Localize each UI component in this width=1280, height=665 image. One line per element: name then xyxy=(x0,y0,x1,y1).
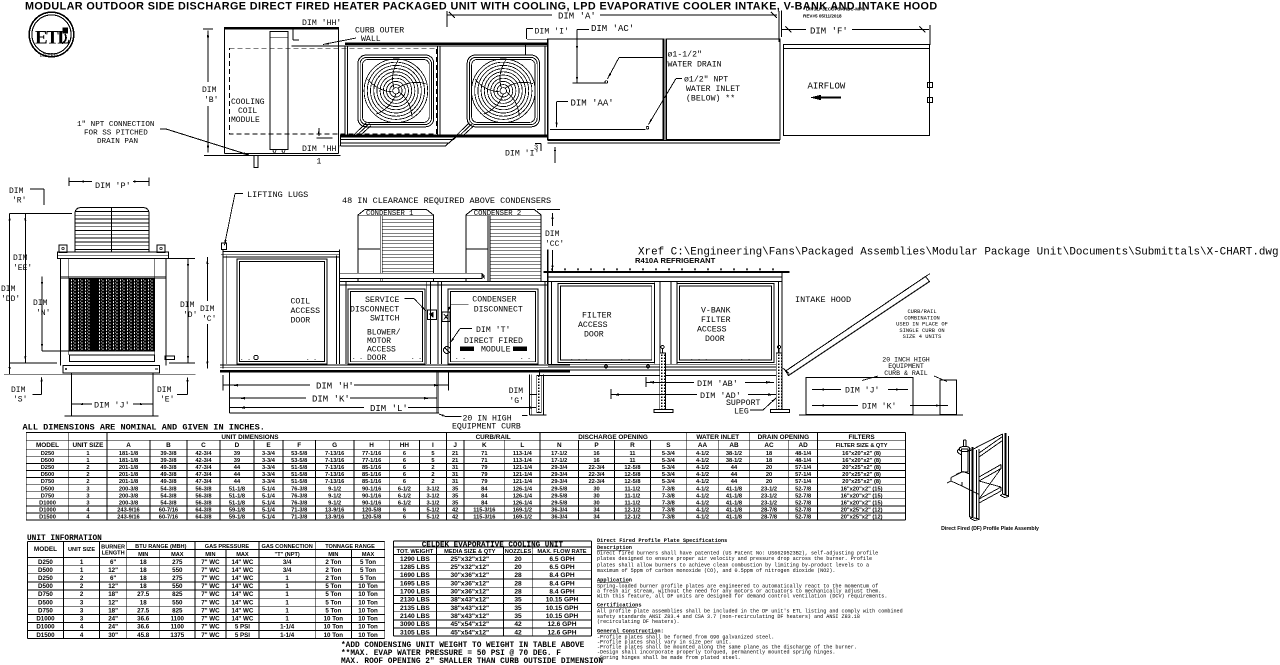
svg-text:1: 1 xyxy=(285,575,289,582)
svg-text:28: 28 xyxy=(514,588,522,595)
svg-text:SIZE 4 UNITS: SIZE 4 UNITS xyxy=(903,334,942,340)
svg-text:77-1/16: 77-1/16 xyxy=(362,458,381,464)
svg-text:2: 2 xyxy=(80,591,84,598)
svg-text:A: A xyxy=(126,442,131,449)
svg-text:243-9/16: 243-9/16 xyxy=(117,515,139,521)
svg-text:6": 6" xyxy=(110,575,116,582)
svg-text:8.4 GPH: 8.4 GPH xyxy=(549,588,575,595)
svg-text:14" WC: 14" WC xyxy=(232,599,254,606)
svg-text:2: 2 xyxy=(86,465,89,471)
svg-text:4-1/2: 4-1/2 xyxy=(696,486,709,492)
svg-text:G: G xyxy=(332,442,337,449)
svg-text:550: 550 xyxy=(172,599,183,606)
svg-text:D750: D750 xyxy=(38,591,53,598)
svg-text:WALL: WALL xyxy=(361,35,381,44)
svg-text:47-3/4: 47-3/4 xyxy=(195,465,212,471)
svg-text:23-1/2: 23-1/2 xyxy=(761,486,777,492)
svg-text:44: 44 xyxy=(731,465,738,471)
svg-text:D750: D750 xyxy=(38,607,53,614)
svg-text:24": 24" xyxy=(108,616,118,623)
svg-text:DIM 'A': DIM 'A' xyxy=(558,12,596,22)
svg-text:(BELOW) **: (BELOW) ** xyxy=(686,94,735,104)
svg-text:34: 34 xyxy=(593,515,600,521)
svg-text:MODEL: MODEL xyxy=(34,546,57,553)
svg-text:1: 1 xyxy=(80,559,84,566)
svg-text:20"x25"x2" (12): 20"x25"x2" (12) xyxy=(841,508,883,514)
svg-text:(recirculating DF heaters).: (recirculating DF heaters). xyxy=(597,619,680,625)
svg-text:COMBINATION: COMBINATION xyxy=(904,315,940,321)
svg-text:D250: D250 xyxy=(38,559,53,566)
svg-text:DIM: DIM xyxy=(509,387,524,396)
svg-text:49-3/8: 49-3/8 xyxy=(160,465,176,471)
svg-text:79: 79 xyxy=(481,465,487,471)
svg-text:7-13/16: 7-13/16 xyxy=(325,465,344,471)
svg-text:ACCESS: ACCESS xyxy=(578,321,608,330)
svg-text:E: E xyxy=(266,442,271,449)
svg-text:13-9/16: 13-9/16 xyxy=(325,508,344,514)
svg-text:550: 550 xyxy=(172,567,183,574)
svg-text:28-7/8: 28-7/8 xyxy=(761,515,777,521)
svg-text:. .: . . xyxy=(740,355,751,362)
svg-text:'E': 'E' xyxy=(160,396,174,405)
svg-text:121-1/4: 121-1/4 xyxy=(513,472,533,478)
svg-text:825: 825 xyxy=(172,607,183,614)
svg-text:3: 3 xyxy=(86,500,89,506)
svg-text:DIM 'HH': DIM 'HH' xyxy=(302,144,341,154)
svg-text:1: 1 xyxy=(285,607,289,614)
svg-text:20: 20 xyxy=(766,465,772,471)
svg-text:12.6 GPH: 12.6 GPH xyxy=(548,629,577,636)
svg-text:53-5/8: 53-5/8 xyxy=(291,458,307,464)
svg-text:DIM 'AB': DIM 'AB' xyxy=(697,379,738,389)
svg-text:5-1/4: 5-1/4 xyxy=(262,515,276,521)
svg-text:12-5/8: 12-5/8 xyxy=(624,472,640,478)
svg-text:5 PSI: 5 PSI xyxy=(235,624,250,631)
svg-text:LENGTH: LENGTH xyxy=(102,551,125,557)
svg-text:29-5/8: 29-5/8 xyxy=(551,500,567,506)
svg-text:D500: D500 xyxy=(38,583,53,590)
svg-text:GAS PRESSURE: GAS PRESSURE xyxy=(205,544,250,550)
svg-text:3-3/4: 3-3/4 xyxy=(262,451,276,457)
svg-text:59-1/8: 59-1/8 xyxy=(229,508,245,514)
svg-text:DIM 'K': DIM 'K' xyxy=(862,402,896,412)
svg-text:DIM 'AD': DIM 'AD' xyxy=(700,391,741,401)
svg-text:J: J xyxy=(453,442,457,449)
svg-text:3-3/4: 3-3/4 xyxy=(262,465,276,471)
svg-text:85-1/16: 85-1/16 xyxy=(362,472,381,478)
svg-text:DIM 'T': DIM 'T' xyxy=(476,325,510,335)
svg-text:28: 28 xyxy=(514,580,522,587)
svg-text:30: 30 xyxy=(593,486,599,492)
svg-text:121-1/4: 121-1/4 xyxy=(513,479,533,485)
svg-text:17-1/2: 17-1/2 xyxy=(551,458,567,464)
svg-text:35: 35 xyxy=(452,493,458,499)
svg-text:10 Ton: 10 Ton xyxy=(358,616,378,623)
svg-text:MODULE: MODULE xyxy=(231,116,260,125)
svg-text:29-3/4: 29-3/4 xyxy=(551,479,568,485)
svg-text:LEG: LEG xyxy=(734,408,749,417)
svg-text:DIM: DIM xyxy=(11,386,26,395)
svg-text:7" WC: 7" WC xyxy=(201,599,220,606)
svg-text:12": 12" xyxy=(108,583,118,590)
svg-text:825: 825 xyxy=(172,591,183,598)
svg-text:MEDIA SIZE & QTY: MEDIA SIZE & QTY xyxy=(444,549,496,555)
svg-text:'S': 'S' xyxy=(13,396,27,405)
svg-text:57-1/4: 57-1/4 xyxy=(795,479,812,485)
svg-text:18": 18" xyxy=(108,591,118,598)
svg-text:29-5/8: 29-5/8 xyxy=(551,493,567,499)
svg-text:52-7/8: 52-7/8 xyxy=(795,500,811,506)
svg-text:MAX: MAX xyxy=(171,552,184,558)
svg-text:DIM: DIM xyxy=(200,305,215,314)
svg-text:AD: AD xyxy=(799,442,809,449)
svg-text:9-1/2: 9-1/2 xyxy=(328,500,341,506)
svg-text:10.15 GPH: 10.15 GPH xyxy=(546,597,579,604)
svg-text:85-1/16: 85-1/16 xyxy=(362,479,381,485)
svg-text:5 Ton: 5 Ton xyxy=(325,583,341,590)
svg-text:126-1/4: 126-1/4 xyxy=(513,500,533,506)
svg-text:51-5/8: 51-5/8 xyxy=(291,472,307,478)
svg-text:200-3/8: 200-3/8 xyxy=(119,486,138,492)
svg-text:10.15 GPH: 10.15 GPH xyxy=(546,613,579,620)
svg-text:ALL DIMENSIONS ARE NOMINAL AND: ALL DIMENSIONS ARE NOMINAL AND GIVEN IN … xyxy=(23,422,265,432)
svg-text:4-1/2: 4-1/2 xyxy=(696,479,709,485)
svg-text:2: 2 xyxy=(80,583,84,590)
svg-text:42-3/4: 42-3/4 xyxy=(195,458,212,464)
svg-text:DIM: DIM xyxy=(9,187,24,196)
svg-text:18: 18 xyxy=(140,599,147,606)
svg-text:DISCONNECT: DISCONNECT xyxy=(350,305,399,314)
svg-text:MODEL: MODEL xyxy=(36,442,59,449)
svg-text:52-7/8: 52-7/8 xyxy=(795,486,811,492)
svg-text:5-1/2: 5-1/2 xyxy=(426,508,439,514)
svg-text:DIM 'J': DIM 'J' xyxy=(94,401,130,411)
svg-text:DIM 'HH': DIM 'HH' xyxy=(302,18,341,28)
svg-text:8.4 GPH: 8.4 GPH xyxy=(549,572,575,579)
svg-text:7-3/8: 7-3/8 xyxy=(662,515,675,521)
svg-text:14" WC: 14" WC xyxy=(232,567,254,574)
svg-text:FILTERS: FILTERS xyxy=(848,434,875,441)
svg-text:'D': 'D' xyxy=(183,311,197,320)
svg-text:57-1/4: 57-1/4 xyxy=(795,472,812,478)
svg-text:DIM 'I': DIM 'I' xyxy=(535,27,569,37)
svg-text:1700 LBS: 1700 LBS xyxy=(400,588,430,595)
svg-text:DIV3LP3ECOFSAHDC-MPU: DIV3LP3ECOFSAHDC-MPU xyxy=(806,7,866,12)
svg-text:31: 31 xyxy=(452,472,458,478)
svg-text:22-3/4: 22-3/4 xyxy=(588,472,605,478)
svg-text:42: 42 xyxy=(452,515,458,521)
svg-text:12-1/2: 12-1/2 xyxy=(624,508,640,514)
svg-text:maximum of 5ppm of carbon mono: maximum of 5ppm of carbon monoxide (CO),… xyxy=(597,568,835,574)
svg-text:plates designed to ensure prop: plates designed to ensure proper air vel… xyxy=(597,556,872,562)
svg-text:DIM: DIM xyxy=(180,301,195,310)
svg-text:10 Ton: 10 Ton xyxy=(358,632,378,639)
svg-text:16: 16 xyxy=(593,458,599,464)
svg-text:**MAX. EVAP WATER PRESSURE = 5: **MAX. EVAP WATER PRESSURE = 50 PSI @ 70… xyxy=(341,650,561,658)
svg-text:'R': 'R' xyxy=(12,197,26,206)
svg-text:30"x36"x12": 30"x36"x12" xyxy=(450,588,489,595)
svg-text:90-1/16: 90-1/16 xyxy=(362,500,381,506)
svg-text:1: 1 xyxy=(285,583,289,590)
svg-text:18: 18 xyxy=(140,583,147,590)
svg-text:DIM: DIM xyxy=(33,299,48,308)
svg-text:DRAIN PAN: DRAIN PAN xyxy=(97,138,138,146)
svg-text:*ADD CONDENSING UNIT WEIGHT TO: *ADD CONDENSING UNIT WEIGHT TO WEIGHT IN… xyxy=(341,642,585,650)
svg-text:L: L xyxy=(520,442,524,449)
svg-text:CURB & RAIL: CURB & RAIL xyxy=(884,370,928,377)
svg-text:7-13/16: 7-13/16 xyxy=(325,451,344,457)
svg-text:25"x32"x12": 25"x32"x12" xyxy=(450,564,489,571)
svg-text:1285 LBS: 1285 LBS xyxy=(400,564,430,571)
svg-text:6.5 GPH: 6.5 GPH xyxy=(549,564,575,571)
svg-text:41-1/8: 41-1/8 xyxy=(726,493,742,499)
svg-text:16"x20"x2" (15): 16"x20"x2" (15) xyxy=(841,500,883,506)
svg-text:7" WC: 7" WC xyxy=(201,632,220,639)
svg-text:2135 LBS: 2135 LBS xyxy=(400,605,430,612)
svg-text:47-3/4: 47-3/4 xyxy=(195,479,212,485)
svg-text:10 Ton: 10 Ton xyxy=(358,607,378,614)
svg-text:52-7/8: 52-7/8 xyxy=(795,515,811,521)
svg-text:TOT. WEIGHT: TOT. WEIGHT xyxy=(397,549,434,555)
svg-text:14" WC: 14" WC xyxy=(232,559,254,566)
svg-text:D500: D500 xyxy=(41,472,55,478)
svg-text:I: I xyxy=(432,442,434,449)
svg-text:AC: AC xyxy=(764,442,774,449)
svg-text:54-3/8: 54-3/8 xyxy=(160,493,176,499)
svg-text:51-1/8: 51-1/8 xyxy=(229,493,245,499)
svg-text:5 Ton: 5 Ton xyxy=(360,559,376,566)
svg-text:51-5/8: 51-5/8 xyxy=(291,465,307,471)
svg-text:200-3/8: 200-3/8 xyxy=(119,493,138,499)
svg-text:1: 1 xyxy=(285,616,289,623)
svg-text:115-3/16: 115-3/16 xyxy=(473,508,495,514)
svg-text:200-3/8: 200-3/8 xyxy=(119,500,138,506)
svg-text:76-3/8: 76-3/8 xyxy=(291,493,307,499)
svg-text:. .: . . xyxy=(520,354,531,361)
svg-text:169-1/2: 169-1/2 xyxy=(513,515,532,521)
svg-text:243-9/16: 243-9/16 xyxy=(117,508,139,514)
svg-text:DOOR: DOOR xyxy=(367,354,386,363)
svg-text:10 Ton: 10 Ton xyxy=(324,616,344,623)
svg-text:5-3/4: 5-3/4 xyxy=(662,472,676,478)
svg-text:DIM 'H': DIM 'H' xyxy=(316,382,354,392)
svg-text:120-5/8: 120-5/8 xyxy=(362,508,381,514)
svg-text:CURB/RAIL: CURB/RAIL xyxy=(476,434,511,441)
svg-text:F: F xyxy=(297,442,301,449)
svg-text:5 Ton: 5 Ton xyxy=(325,599,341,606)
svg-text:MODULAR OUTDOOR SIDE DISCHARGE: MODULAR OUTDOOR SIDE DISCHARGE DIRECT FI… xyxy=(25,1,938,13)
svg-text:. .: . . xyxy=(411,354,422,361)
svg-text:2 Ton: 2 Ton xyxy=(325,575,341,582)
svg-text:6: 6 xyxy=(403,458,406,464)
svg-text:1690 LBS: 1690 LBS xyxy=(400,572,430,579)
svg-text:ø1/2" NPT: ø1/2" NPT xyxy=(684,75,728,85)
svg-text:71: 71 xyxy=(481,458,487,464)
svg-text:2130 LBS: 2130 LBS xyxy=(400,597,430,604)
svg-text:11-1/2: 11-1/2 xyxy=(625,486,641,492)
svg-text:2 Ton: 2 Ton xyxy=(325,559,341,566)
svg-text:7" WC: 7" WC xyxy=(201,575,220,582)
svg-text:48-1/4: 48-1/4 xyxy=(795,458,812,464)
svg-text:24": 24" xyxy=(108,624,118,631)
svg-text:126-1/4: 126-1/4 xyxy=(513,486,533,492)
svg-text:5 Ton: 5 Ton xyxy=(325,607,341,614)
svg-text:49-3/8: 49-3/8 xyxy=(160,479,176,485)
svg-text:S: S xyxy=(666,442,671,449)
svg-text:90-1/16: 90-1/16 xyxy=(362,493,381,499)
svg-text:14" WC: 14" WC xyxy=(232,575,254,582)
svg-text:275: 275 xyxy=(172,575,183,582)
svg-text:6-1/2: 6-1/2 xyxy=(398,486,411,492)
svg-text:MIN: MIN xyxy=(328,552,338,558)
svg-text:WATER DRAIN: WATER DRAIN xyxy=(668,61,722,70)
svg-text:20"x25"x2" (8): 20"x25"x2" (8) xyxy=(842,479,881,485)
svg-text:P: P xyxy=(594,442,599,449)
svg-text:52-7/8: 52-7/8 xyxy=(795,493,811,499)
svg-text:6: 6 xyxy=(403,472,406,478)
svg-text:1290 LBS: 1290 LBS xyxy=(400,556,430,563)
svg-text:47-3/4: 47-3/4 xyxy=(195,472,212,478)
svg-text:D: D xyxy=(235,442,240,449)
svg-text:3: 3 xyxy=(80,616,84,623)
svg-text:D1000: D1000 xyxy=(36,624,55,631)
svg-text:USED IN PLACE OF: USED IN PLACE OF xyxy=(896,322,948,328)
svg-text:38"x43"x12": 38"x43"x12" xyxy=(450,597,489,604)
svg-text:DIM 'P': DIM 'P' xyxy=(95,181,131,191)
svg-text:5-1/2: 5-1/2 xyxy=(426,515,439,521)
svg-text:D250: D250 xyxy=(38,575,53,582)
svg-text:201-1/8: 201-1/8 xyxy=(119,479,138,485)
svg-text:2: 2 xyxy=(80,575,84,582)
svg-text:6: 6 xyxy=(403,451,406,457)
svg-text:DISCONNECT: DISCONNECT xyxy=(474,305,523,314)
svg-text:20"x25"x2" (8): 20"x25"x2" (8) xyxy=(842,472,881,478)
svg-text:71-3/8: 71-3/8 xyxy=(291,508,307,514)
svg-text:5-1/4: 5-1/4 xyxy=(262,508,276,514)
svg-text:N: N xyxy=(557,442,562,449)
svg-text:MODULE: MODULE xyxy=(481,346,511,355)
svg-text:28-7/8: 28-7/8 xyxy=(761,508,777,514)
svg-text:71-3/8: 71-3/8 xyxy=(291,515,307,521)
svg-text:10 Ton: 10 Ton xyxy=(324,632,344,639)
svg-text:25"x32"x12": 25"x32"x12" xyxy=(450,556,489,563)
svg-text:23-1/2: 23-1/2 xyxy=(761,500,777,506)
svg-text:7-3/8: 7-3/8 xyxy=(662,493,675,499)
svg-text:31: 31 xyxy=(452,465,458,471)
svg-text:13-9/16: 13-9/16 xyxy=(325,515,344,521)
svg-text:MIN: MIN xyxy=(138,552,148,558)
svg-text:DIM 'AC': DIM 'AC' xyxy=(591,24,634,34)
svg-text:5-3/4: 5-3/4 xyxy=(662,465,676,471)
svg-text:115-3/16: 115-3/16 xyxy=(473,515,495,521)
svg-text:DIM 'L': DIM 'L' xyxy=(370,404,408,414)
svg-text:UNIT DIMENSIONS: UNIT DIMENSIONS xyxy=(221,434,279,441)
svg-text:275: 275 xyxy=(172,559,183,566)
svg-text:20: 20 xyxy=(514,556,522,563)
svg-text:84: 84 xyxy=(481,500,488,506)
svg-text:64-3/8: 64-3/8 xyxy=(195,508,211,514)
svg-text:3090 LBS: 3090 LBS xyxy=(400,621,430,628)
svg-text:30": 30" xyxy=(108,632,118,639)
svg-text:DIM 'F': DIM 'F' xyxy=(810,26,848,36)
svg-text:D1500: D1500 xyxy=(36,632,55,639)
svg-text:16"x20"x2" (8): 16"x20"x2" (8) xyxy=(842,458,881,464)
svg-text:60-7/16: 60-7/16 xyxy=(159,515,178,521)
svg-text:56-3/8: 56-3/8 xyxy=(195,493,211,499)
svg-text:38"x43"x12": 38"x43"x12" xyxy=(450,605,489,612)
svg-text:30"x36"x12": 30"x36"x12" xyxy=(450,580,489,587)
svg-text:12-1/2: 12-1/2 xyxy=(624,515,640,521)
svg-text:5-3/4: 5-3/4 xyxy=(662,451,676,457)
svg-text:With this feature, all DF unit: With this feature, all DF units are desi… xyxy=(597,594,887,600)
svg-text:R410A REFRIGERANT: R410A REFRIGERANT xyxy=(635,256,716,265)
svg-text:84: 84 xyxy=(481,493,488,499)
svg-text:FOR SS PITCHED: FOR SS PITCHED xyxy=(84,130,148,138)
svg-text:C: C xyxy=(201,442,206,449)
svg-text:5-1/4: 5-1/4 xyxy=(262,500,276,506)
svg-text:35: 35 xyxy=(452,486,458,492)
svg-text:SWITCH: SWITCH xyxy=(370,315,400,324)
svg-text:10.15 GPH: 10.15 GPH xyxy=(546,605,579,612)
svg-text:TONNAGE RANGE: TONNAGE RANGE xyxy=(325,544,375,550)
svg-text:41-1/8: 41-1/8 xyxy=(726,486,742,492)
svg-text:DIM: DIM xyxy=(157,386,172,395)
svg-text:2: 2 xyxy=(86,479,89,485)
svg-text:3: 3 xyxy=(80,607,84,614)
svg-text:84: 84 xyxy=(481,486,488,492)
svg-text:16"x20"x2" (15): 16"x20"x2" (15) xyxy=(841,486,883,492)
svg-text:6-1/2: 6-1/2 xyxy=(398,493,411,499)
svg-text:181-1/8: 181-1/8 xyxy=(119,458,138,464)
svg-text:10 Ton: 10 Ton xyxy=(358,583,378,590)
svg-text:5-1/4: 5-1/4 xyxy=(262,493,276,499)
svg-text:2: 2 xyxy=(431,479,434,485)
svg-text:36-3/4: 36-3/4 xyxy=(551,515,568,521)
svg-text:113-1/4: 113-1/4 xyxy=(513,451,533,457)
svg-text:. .: . . xyxy=(455,354,466,361)
svg-text:COIL: COIL xyxy=(238,107,257,116)
svg-text:'G': 'G' xyxy=(509,397,523,406)
svg-text:20"x25"x2" (12): 20"x25"x2" (12) xyxy=(841,515,883,521)
svg-text:4: 4 xyxy=(80,624,84,631)
svg-text:71: 71 xyxy=(481,451,487,457)
svg-text:1" NPT CONNECTION: 1" NPT CONNECTION xyxy=(77,121,154,129)
svg-text:GAS CONNECTION: GAS CONNECTION xyxy=(262,544,313,550)
svg-text:4-1/2: 4-1/2 xyxy=(696,451,709,457)
svg-text:54-3/8: 54-3/8 xyxy=(160,486,176,492)
svg-text:5: 5 xyxy=(431,458,434,464)
svg-text:1: 1 xyxy=(317,158,322,167)
svg-text:18": 18" xyxy=(108,607,118,614)
svg-text:39-3/8: 39-3/8 xyxy=(160,451,176,457)
svg-text:ACCESS: ACCESS xyxy=(291,307,321,316)
svg-text:44: 44 xyxy=(731,472,738,478)
svg-text:11-1/2: 11-1/2 xyxy=(625,500,641,506)
svg-text:DIM 'K': DIM 'K' xyxy=(312,395,350,405)
svg-text:. .: . . xyxy=(306,355,317,362)
svg-text:DIM 'J': DIM 'J' xyxy=(845,386,879,396)
svg-text:7-13/16: 7-13/16 xyxy=(325,472,344,478)
svg-text:'DD': 'DD' xyxy=(1,295,20,304)
svg-text:10 Ton: 10 Ton xyxy=(324,624,344,631)
svg-text:42: 42 xyxy=(452,508,458,514)
svg-text:Xref C:\Engineering\Fans\Packa: Xref C:\Engineering\Fans\Packaged Assemb… xyxy=(638,247,1278,259)
svg-text:9-1/2: 9-1/2 xyxy=(328,493,341,499)
svg-text:'C': 'C' xyxy=(202,315,216,324)
svg-text:AIRFLOW: AIRFLOW xyxy=(808,82,846,92)
svg-text:'N': 'N' xyxy=(36,309,50,318)
svg-text:1100: 1100 xyxy=(171,616,185,623)
